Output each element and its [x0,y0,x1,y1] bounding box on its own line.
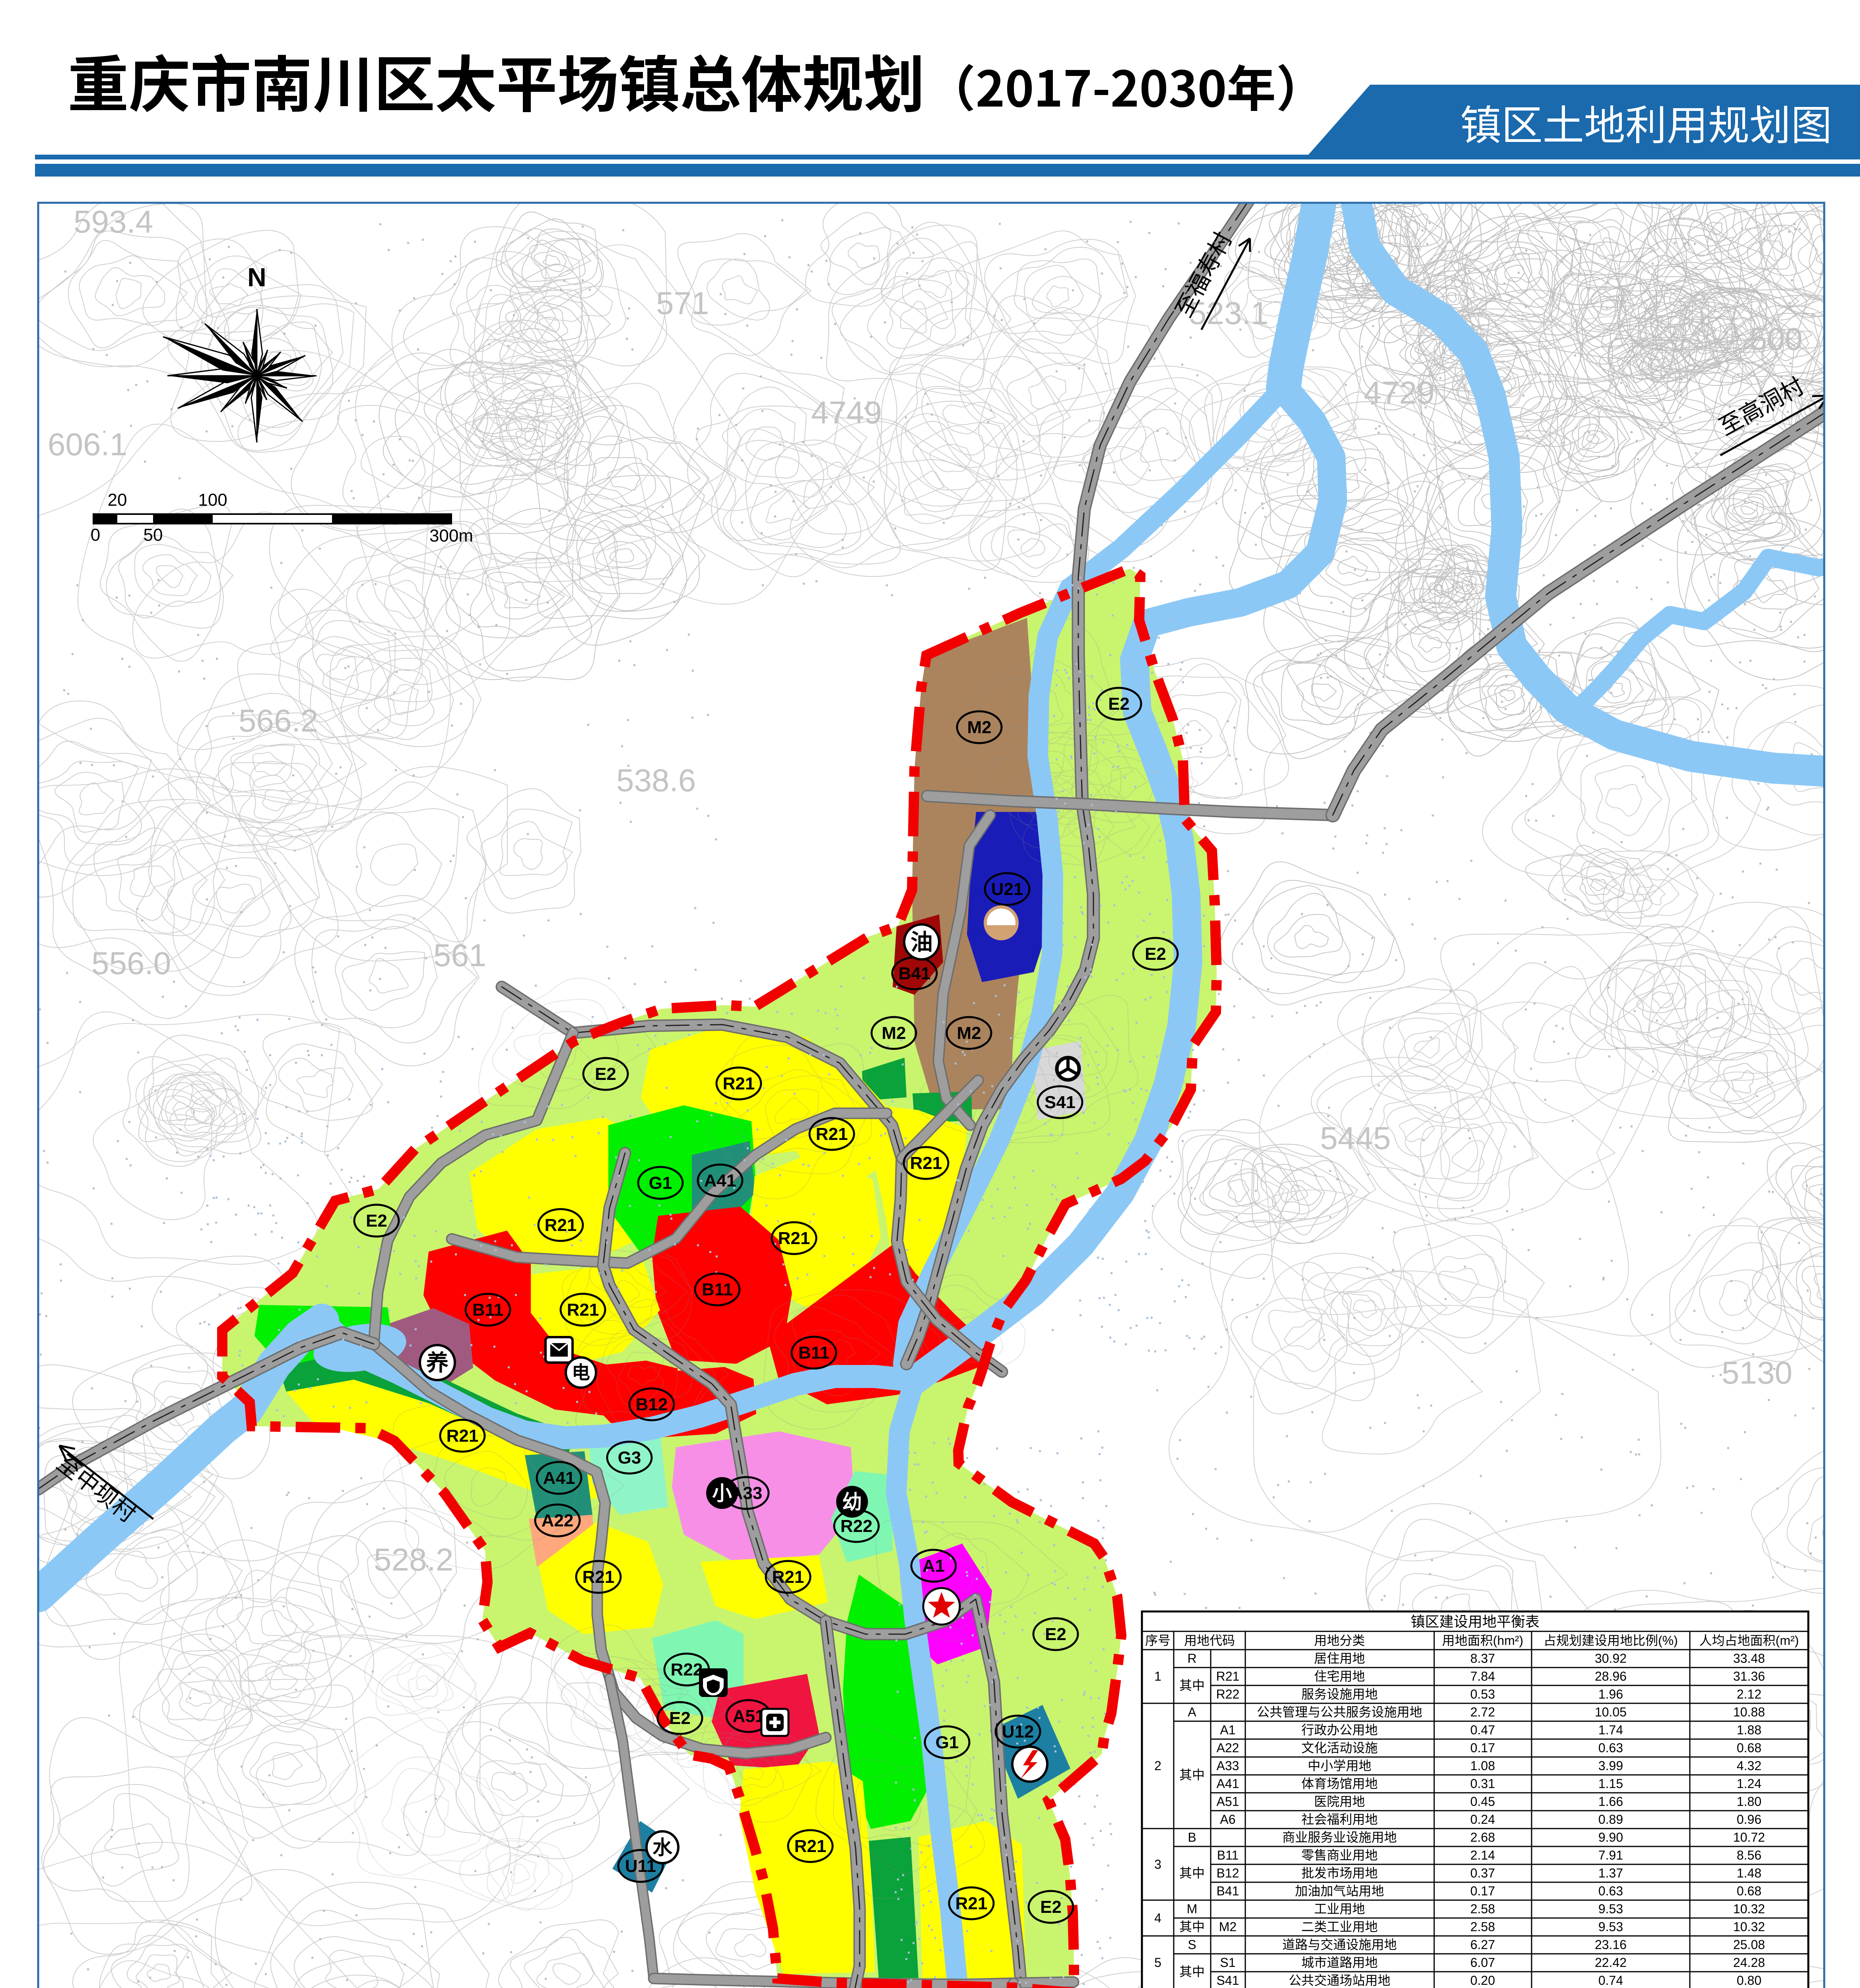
svg-text:0.45: 0.45 [1470,1794,1495,1809]
svg-text:R22: R22 [841,1516,873,1536]
svg-text:S41: S41 [1217,1973,1239,1988]
svg-text:G3: G3 [618,1448,641,1468]
svg-text:30.92: 30.92 [1595,1651,1627,1666]
svg-text:0: 0 [91,525,100,545]
svg-text:0.17: 0.17 [1470,1741,1495,1755]
svg-text:服务设施用地: 服务设施用地 [1301,1687,1378,1701]
svg-text:用地面积(hm²): 用地面积(hm²) [1442,1633,1523,1648]
svg-text:其中: 其中 [1179,1768,1205,1782]
svg-text:S1: S1 [1220,1955,1235,1970]
svg-text:用地代码: 用地代码 [1184,1633,1235,1648]
svg-text:B11: B11 [702,1280,733,1299]
svg-text:行政办公用地: 行政办公用地 [1301,1723,1378,1737]
svg-text:水: 水 [652,1837,673,1859]
svg-text:B11: B11 [798,1343,829,1363]
svg-text:8.37: 8.37 [1470,1651,1495,1666]
svg-text:10.88: 10.88 [1733,1705,1765,1719]
svg-text:A22: A22 [1217,1741,1239,1755]
svg-text:A41: A41 [704,1171,736,1190]
svg-text:E2: E2 [366,1211,387,1231]
svg-text:R21: R21 [1216,1669,1240,1683]
svg-text:6.27: 6.27 [1470,1938,1495,1952]
svg-text:2.72: 2.72 [1470,1705,1495,1719]
svg-text:医院用地: 医院用地 [1314,1794,1365,1809]
svg-text:工业用地: 工业用地 [1314,1902,1365,1916]
svg-text:人均占地面积(m²): 人均占地面积(m²) [1699,1633,1799,1648]
svg-text:0.31: 0.31 [1470,1776,1495,1791]
svg-text:M2: M2 [967,718,991,737]
svg-text:M: M [1187,1902,1198,1916]
svg-text:0.80: 0.80 [1737,1973,1761,1988]
svg-text:居住用地: 居住用地 [1314,1651,1365,1666]
svg-text:0.63: 0.63 [1598,1884,1623,1898]
svg-text:538.6: 538.6 [616,763,696,798]
svg-text:20: 20 [108,490,127,510]
svg-text:G1: G1 [649,1173,672,1193]
svg-text:G1: G1 [936,1733,959,1752]
svg-text:B11: B11 [472,1300,503,1320]
svg-text:300m: 300m [429,526,473,546]
svg-text:606.1: 606.1 [48,427,127,462]
svg-text:0.24: 0.24 [1470,1812,1495,1827]
svg-text:S41: S41 [1045,1093,1076,1112]
svg-text:道路与交通设施用地: 道路与交通设施用地 [1282,1938,1397,1952]
svg-text:电: 电 [572,1362,590,1383]
svg-text:593.4: 593.4 [74,204,153,239]
svg-text:占规划建设用地比例(%): 占规划建设用地比例(%) [1544,1633,1678,1648]
svg-text:R22: R22 [671,1660,703,1679]
svg-text:A6: A6 [1220,1812,1235,1827]
svg-text:561: 561 [433,938,486,973]
svg-text:1.08: 1.08 [1470,1759,1495,1773]
svg-text:A33: A33 [1217,1759,1239,1773]
svg-text:批发市场用地: 批发市场用地 [1301,1866,1378,1880]
svg-text:9.53: 9.53 [1598,1920,1623,1934]
svg-text:2.58: 2.58 [1470,1902,1495,1916]
svg-text:0.53: 0.53 [1470,1687,1495,1701]
svg-text:10.72: 10.72 [1733,1830,1765,1844]
svg-text:1: 1 [1154,1669,1161,1683]
svg-text:零售商业用地: 零售商业用地 [1301,1848,1378,1862]
svg-text:公共管理与公共服务设施用地: 公共管理与公共服务设施用地 [1257,1705,1422,1719]
svg-text:0.17: 0.17 [1470,1884,1495,1898]
svg-text:序号: 序号 [1145,1633,1171,1648]
svg-text:25.08: 25.08 [1733,1938,1765,1952]
svg-text:3: 3 [1154,1857,1161,1872]
svg-text:R21: R21 [772,1567,804,1587]
svg-text:R21: R21 [447,1426,479,1446]
svg-text:5445: 5445 [1320,1120,1391,1156]
svg-text:500: 500 [1749,321,1802,357]
svg-text:B41: B41 [1217,1884,1239,1898]
svg-text:小: 小 [712,1482,732,1505]
svg-text:油: 油 [911,930,933,955]
svg-text:E2: E2 [595,1064,616,1084]
svg-text:7.84: 7.84 [1470,1669,1495,1683]
svg-text:0.74: 0.74 [1598,1973,1623,1988]
svg-text:R21: R21 [955,1894,988,1913]
svg-text:6.07: 6.07 [1470,1955,1495,1970]
svg-text:加油加气站用地: 加油加气站用地 [1295,1884,1384,1898]
svg-text:R21: R21 [910,1153,942,1173]
svg-text:M2: M2 [881,1023,906,1043]
svg-text:R22: R22 [1216,1687,1240,1701]
svg-text:社会福利用地: 社会福利用地 [1301,1812,1378,1827]
svg-text:31.36: 31.36 [1733,1669,1765,1683]
svg-text:B12: B12 [1217,1866,1239,1880]
svg-text:R21: R21 [545,1215,577,1235]
svg-text:9.90: 9.90 [1598,1830,1623,1844]
svg-text:A1: A1 [1220,1723,1235,1737]
svg-text:10.05: 10.05 [1595,1705,1627,1719]
svg-text:R21: R21 [794,1837,827,1856]
svg-text:3.99: 3.99 [1598,1759,1623,1773]
svg-text:7.91: 7.91 [1598,1848,1623,1862]
svg-text:养: 养 [426,1350,448,1375]
svg-text:体育场馆用地: 体育场馆用地 [1301,1776,1378,1791]
svg-text:0.89: 0.89 [1598,1812,1623,1827]
svg-text:1.37: 1.37 [1598,1866,1623,1880]
svg-text:用地分类: 用地分类 [1314,1633,1365,1648]
svg-text:A1: A1 [922,1556,945,1576]
svg-text:566.2: 566.2 [239,703,318,738]
svg-text:B12: B12 [636,1395,668,1414]
svg-text:1.96: 1.96 [1598,1687,1623,1701]
svg-text:2.68: 2.68 [1470,1830,1495,1844]
svg-text:1.48: 1.48 [1737,1866,1761,1880]
svg-text:M2: M2 [957,1023,981,1043]
svg-text:33.48: 33.48 [1733,1651,1765,1666]
svg-text:A51: A51 [1217,1794,1239,1809]
svg-text:镇区建设用地平衡表: 镇区建设用地平衡表 [1411,1613,1540,1630]
svg-text:5: 5 [1154,1955,1161,1970]
svg-text:23.16: 23.16 [1595,1938,1627,1952]
svg-text:4: 4 [1154,1911,1161,1925]
svg-text:B11: B11 [1217,1848,1239,1862]
svg-text:二类工业用地: 二类工业用地 [1301,1920,1378,1934]
svg-text:住宅用地: 住宅用地 [1314,1669,1365,1683]
svg-text:A: A [1188,1705,1196,1719]
svg-text:0.47: 0.47 [1470,1723,1495,1737]
svg-text:A22: A22 [542,1511,574,1530]
svg-text:2.58: 2.58 [1470,1920,1495,1934]
svg-text:R21: R21 [582,1567,615,1587]
svg-text:中小学用地: 中小学用地 [1308,1759,1371,1773]
svg-text:1.74: 1.74 [1598,1723,1623,1737]
svg-text:10.32: 10.32 [1733,1902,1765,1916]
svg-text:517.2: 517.2 [278,1983,358,1988]
svg-text:E2: E2 [1108,694,1130,714]
svg-text:8.56: 8.56 [1737,1848,1761,1862]
svg-text:U21: U21 [991,879,1023,899]
svg-text:1.66: 1.66 [1598,1794,1623,1809]
svg-text:A41: A41 [543,1468,575,1488]
svg-text:幼: 幼 [842,1491,862,1513]
svg-text:R21: R21 [778,1229,810,1248]
svg-text:0.68: 0.68 [1737,1741,1761,1755]
svg-text:R: R [1187,1651,1196,1666]
svg-text:4749: 4749 [811,395,882,430]
svg-text:A51: A51 [733,1706,765,1726]
svg-text:B41: B41 [899,964,931,983]
svg-text:1.88: 1.88 [1737,1723,1761,1737]
svg-text:R21: R21 [723,1074,755,1093]
svg-text:其中: 其中 [1179,1866,1205,1880]
svg-text:1.24: 1.24 [1737,1776,1761,1791]
svg-text:其中: 其中 [1179,1920,1205,1934]
svg-text:1.15: 1.15 [1598,1776,1623,1791]
svg-text:R21: R21 [816,1124,848,1144]
svg-text:0.20: 0.20 [1470,1973,1495,1988]
svg-text:0.37: 0.37 [1470,1866,1495,1880]
svg-text:E2: E2 [1040,1897,1062,1917]
svg-text:0.68: 0.68 [1737,1884,1761,1898]
svg-text:其中: 其中 [1179,1678,1205,1693]
svg-text:22.42: 22.42 [1595,1955,1627,1970]
svg-text:公共交通场站用地: 公共交通场站用地 [1289,1973,1390,1988]
svg-text:N: N [247,262,266,292]
svg-text:2: 2 [1154,1759,1161,1773]
svg-text:0.63: 0.63 [1598,1741,1623,1755]
svg-text:城市道路用地: 城市道路用地 [1301,1955,1378,1970]
svg-text:M2: M2 [1219,1920,1237,1934]
svg-text:5130: 5130 [1722,1355,1792,1390]
svg-text:E2: E2 [1045,1625,1066,1644]
svg-text:R21: R21 [567,1300,599,1320]
svg-text:10.32: 10.32 [1733,1920,1765,1934]
svg-text:2.12: 2.12 [1737,1687,1761,1701]
svg-text:1.80: 1.80 [1737,1794,1761,1809]
svg-text:528.2: 528.2 [374,1542,453,1577]
svg-text:28.96: 28.96 [1595,1669,1627,1683]
svg-text:556.0: 556.0 [91,945,171,981]
svg-text:571: 571 [656,285,709,321]
svg-text:文化活动设施: 文化活动设施 [1301,1741,1378,1755]
svg-text:24.28: 24.28 [1733,1955,1765,1970]
svg-text:E2: E2 [669,1708,691,1728]
svg-text:S: S [1188,1938,1196,1952]
svg-text:9.53: 9.53 [1598,1902,1623,1916]
svg-text:其中: 其中 [1179,1965,1205,1979]
svg-text:2.14: 2.14 [1470,1848,1495,1862]
svg-text:E2: E2 [1145,944,1166,964]
svg-text:100: 100 [198,490,227,510]
svg-text:4.32: 4.32 [1737,1759,1761,1773]
svg-text:U12: U12 [1002,1722,1034,1741]
svg-text:4729: 4729 [1364,375,1435,410]
svg-text:商业服务业设施用地: 商业服务业设施用地 [1282,1830,1397,1844]
svg-text:B: B [1188,1830,1196,1844]
svg-text:A41: A41 [1217,1776,1239,1791]
svg-text:50: 50 [144,525,163,545]
svg-text:0.96: 0.96 [1737,1812,1761,1827]
